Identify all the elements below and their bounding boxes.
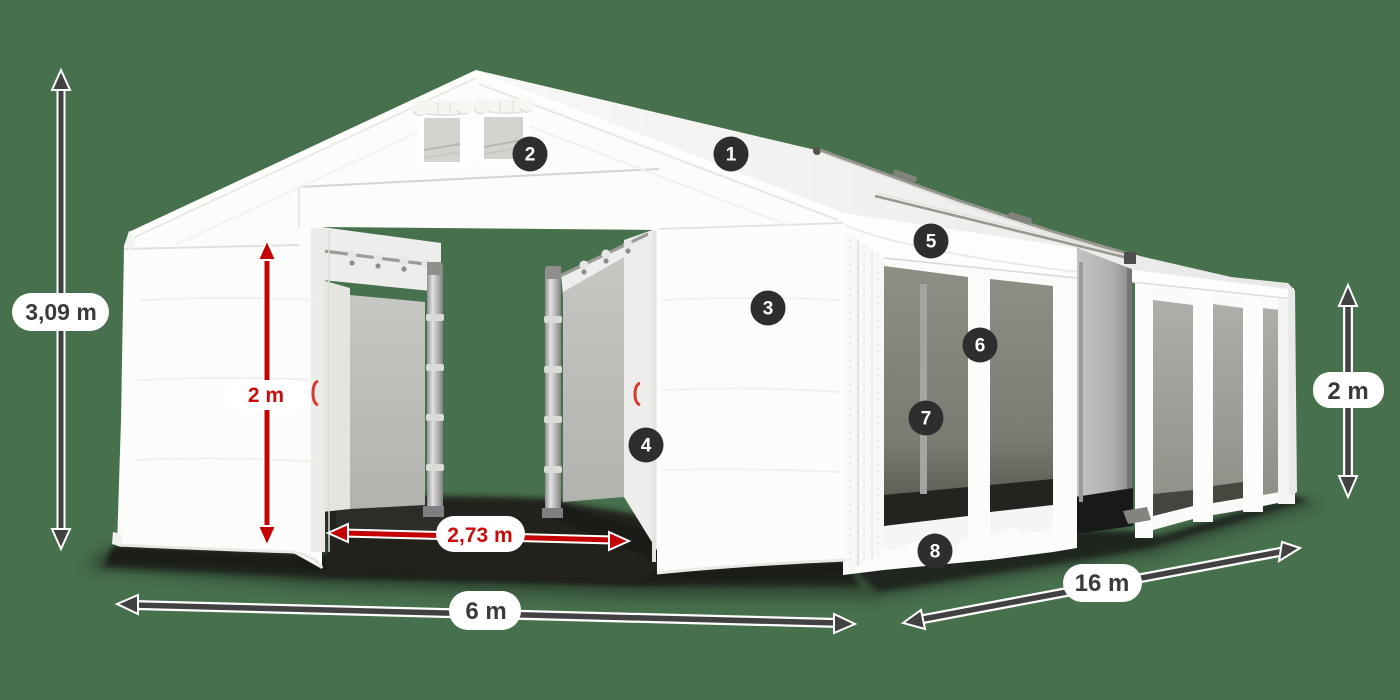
svg-text:2,73 m: 2,73 m: [447, 524, 512, 547]
svg-text:1: 1: [726, 145, 737, 166]
svg-text:5: 5: [926, 232, 937, 253]
svg-text:3: 3: [763, 299, 774, 320]
svg-text:2 m: 2 m: [248, 384, 284, 407]
svg-text:6 m: 6 m: [465, 598, 506, 625]
svg-text:3,09 m: 3,09 m: [25, 299, 97, 325]
svg-text:7: 7: [921, 409, 932, 430]
svg-text:8: 8: [930, 542, 941, 563]
svg-text:2 m: 2 m: [1327, 378, 1368, 405]
svg-text:6: 6: [975, 336, 986, 357]
svg-text:4: 4: [641, 436, 652, 457]
svg-text:16 m: 16 m: [1075, 570, 1130, 597]
svg-text:2: 2: [525, 145, 536, 166]
